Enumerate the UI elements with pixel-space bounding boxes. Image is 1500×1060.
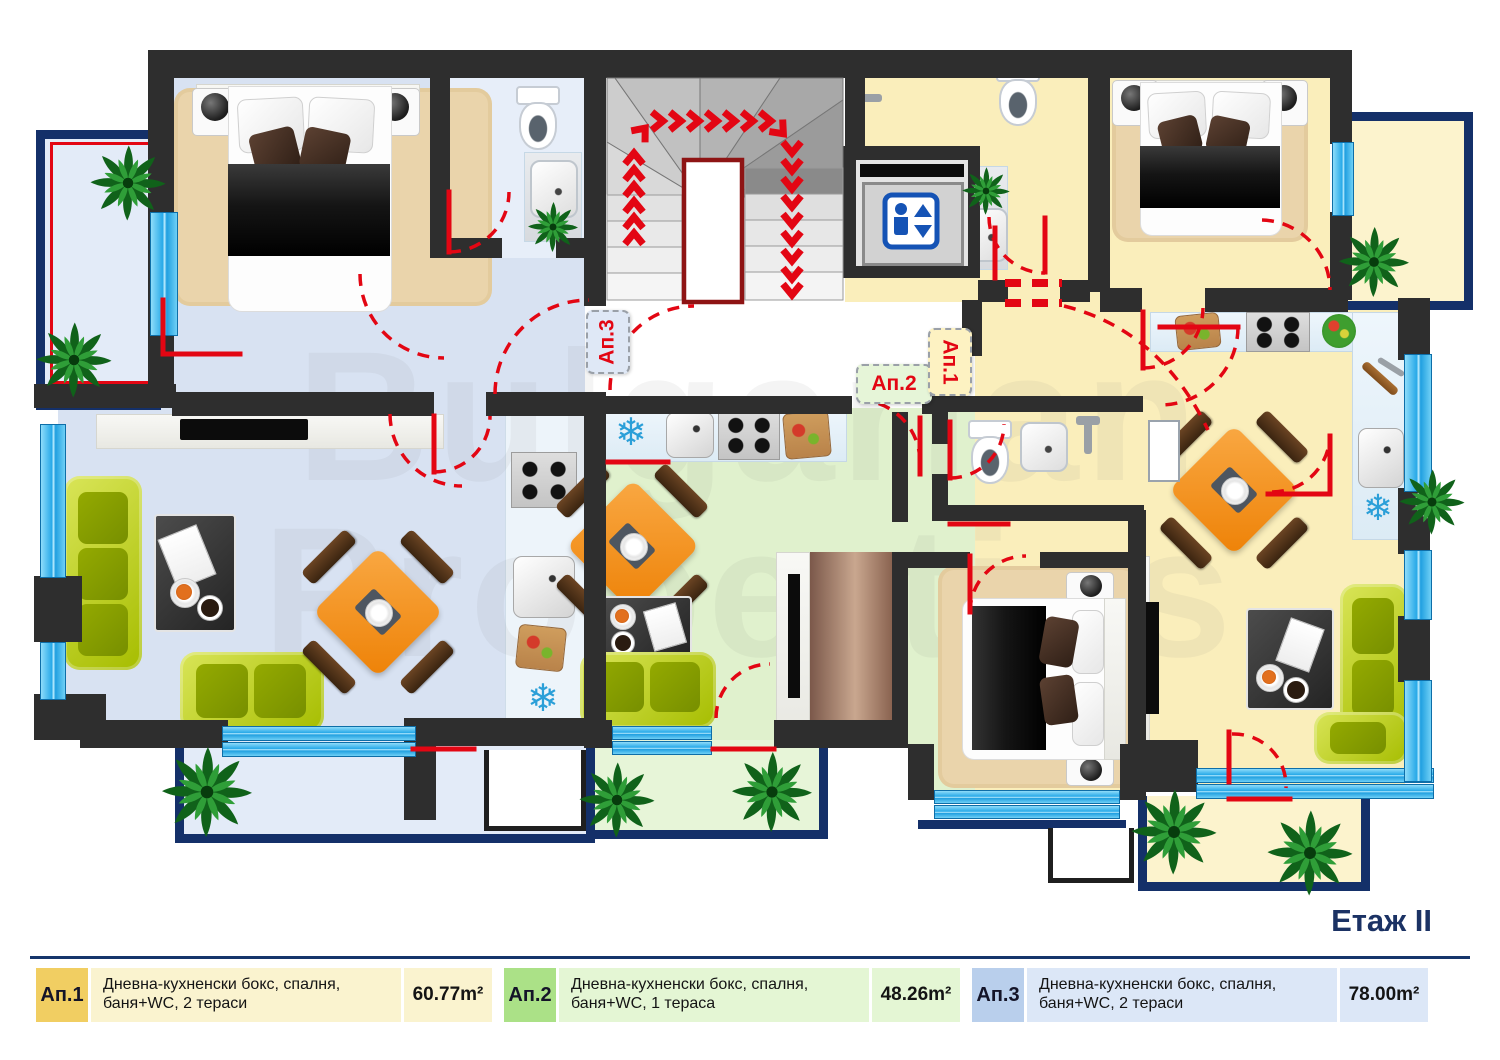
shower-head bbox=[1076, 416, 1100, 425]
wall bbox=[1120, 744, 1146, 800]
toilet bbox=[966, 420, 1010, 482]
floor-plan-page: Bulgarian Properties ❄ ❄ bbox=[0, 0, 1500, 1060]
bed-blanket bbox=[228, 164, 390, 256]
window bbox=[1332, 142, 1354, 216]
sofa-cushion bbox=[1352, 660, 1394, 716]
wall bbox=[430, 76, 450, 258]
sofa-cushion bbox=[1330, 722, 1386, 754]
lamp-icon bbox=[1080, 575, 1102, 597]
cutting-board bbox=[1174, 312, 1221, 351]
pillow bbox=[1072, 610, 1104, 674]
bathroom-sink bbox=[530, 160, 578, 218]
wall bbox=[1128, 510, 1146, 750]
plate bbox=[620, 533, 648, 561]
lamp-icon bbox=[1080, 759, 1102, 781]
legend-area-ap1: 60.77m² bbox=[404, 968, 492, 1022]
legend-label-ap1: Ап.1 bbox=[36, 968, 88, 1022]
window bbox=[1404, 680, 1432, 782]
wall bbox=[908, 744, 934, 800]
wall bbox=[584, 396, 606, 742]
window bbox=[222, 726, 416, 741]
sofa-cushion bbox=[254, 664, 306, 718]
light-well bbox=[1048, 828, 1134, 883]
cutting-board bbox=[782, 410, 832, 460]
wall bbox=[845, 76, 865, 152]
bed-blanket bbox=[972, 606, 1046, 750]
wall bbox=[148, 50, 1352, 78]
plan-tag-ap3-label: Ап.3 bbox=[596, 319, 620, 364]
wall bbox=[1205, 288, 1348, 312]
wall bbox=[605, 396, 852, 414]
window bbox=[40, 642, 66, 700]
window bbox=[40, 424, 66, 578]
tv bbox=[1146, 602, 1159, 714]
wall bbox=[80, 720, 228, 748]
legend-desc-ap1: Дневна-кухненски бокс, спалня, баня+WC, … bbox=[91, 968, 401, 1022]
toilet bbox=[514, 86, 558, 148]
sofa-cushion bbox=[78, 492, 128, 544]
wall bbox=[1398, 488, 1430, 554]
wardrobe bbox=[810, 552, 892, 738]
wall bbox=[1398, 298, 1430, 360]
legend-desc-ap3: Дневна-кухненски бокс, спалня, баня+WC, … bbox=[1027, 968, 1337, 1022]
wall bbox=[1060, 280, 1090, 302]
window bbox=[612, 741, 712, 755]
coffee-cup bbox=[1284, 678, 1308, 702]
fridge-snowflake-icon: ❄ bbox=[600, 410, 662, 454]
food bbox=[615, 609, 629, 623]
window bbox=[1404, 354, 1432, 492]
terrace-ap1-bottom bbox=[1138, 796, 1370, 891]
wall bbox=[584, 76, 606, 306]
legend: Ап.1 Дневна-кухненски бокс, спалня, баня… bbox=[36, 968, 1428, 1022]
wall bbox=[908, 552, 970, 568]
wall bbox=[172, 392, 434, 416]
plan-tag-ap1: Ап.1 bbox=[928, 328, 972, 396]
wall bbox=[978, 280, 1008, 302]
sofa-cushion bbox=[1352, 598, 1394, 654]
window bbox=[1196, 784, 1434, 799]
window bbox=[1196, 768, 1434, 783]
shower-fixture bbox=[1084, 420, 1092, 454]
wall bbox=[1330, 212, 1352, 300]
legend-desc-ap2: Дневна-кухненски бокс, спалня, баня+WC, … bbox=[559, 968, 869, 1022]
legend-area-ap3: 78.00m² bbox=[1340, 968, 1428, 1022]
coffee-cup bbox=[612, 632, 634, 654]
legend-label-ap3: Ап.3 bbox=[972, 968, 1024, 1022]
kitchen-sink bbox=[666, 412, 714, 458]
plan-tag-ap1-label: Ап.1 bbox=[938, 339, 962, 384]
wall bbox=[945, 396, 1143, 412]
wall bbox=[892, 552, 908, 744]
coffee-cup bbox=[198, 596, 222, 620]
legend-area-ap2: 48.26m² bbox=[872, 968, 960, 1022]
terrace-ap1-top-right bbox=[1348, 112, 1473, 310]
wall bbox=[430, 238, 502, 258]
legend-item-ap3: Ап.3 Дневна-кухненски бокс, спалня, баня… bbox=[972, 968, 1428, 1022]
accent-cushion bbox=[1039, 674, 1079, 726]
stairwell-floor bbox=[605, 76, 845, 306]
lamp-icon bbox=[201, 93, 229, 121]
plan-tag-ap3: Ап.3 bbox=[586, 310, 630, 374]
floor-title: Етаж II bbox=[1000, 903, 1432, 939]
divider-rule bbox=[30, 956, 1470, 959]
kitchen-sink bbox=[1358, 428, 1404, 488]
stove bbox=[718, 410, 780, 460]
elevator-door-band bbox=[860, 164, 964, 177]
legend-label-ap2: Ап.2 bbox=[504, 968, 556, 1022]
food bbox=[176, 584, 192, 600]
plan-tag-ap2-label: Ап.2 bbox=[871, 372, 916, 396]
wall bbox=[556, 238, 586, 258]
window bbox=[222, 742, 416, 757]
plan-tag-ap2: Ап.2 bbox=[856, 364, 932, 404]
tv bbox=[788, 574, 800, 698]
bed-blanket bbox=[1140, 146, 1280, 208]
headboard bbox=[1104, 598, 1126, 760]
sofa-cushion bbox=[650, 662, 700, 712]
window bbox=[150, 212, 178, 336]
wall bbox=[1100, 288, 1142, 312]
window bbox=[934, 790, 1120, 804]
wall bbox=[1088, 76, 1110, 292]
window bbox=[612, 726, 712, 740]
plate bbox=[1221, 477, 1249, 505]
sofa-cushion bbox=[78, 548, 128, 600]
wall-shelf bbox=[1148, 420, 1180, 482]
sofa-cushion bbox=[196, 664, 248, 718]
wall bbox=[774, 720, 908, 748]
wall bbox=[932, 505, 1144, 521]
terrace-ap3-left-red-line bbox=[50, 142, 153, 384]
stove bbox=[1246, 312, 1310, 352]
legend-item-ap2: Ап.2 Дневна-кухненски бокс, спалня, баня… bbox=[504, 968, 960, 1022]
wall bbox=[1146, 740, 1198, 792]
salad-bowl bbox=[1322, 314, 1356, 348]
window bbox=[1404, 550, 1432, 620]
bathroom-sink bbox=[1020, 422, 1068, 472]
food bbox=[1262, 670, 1276, 684]
wall bbox=[34, 384, 176, 408]
wall bbox=[932, 412, 948, 444]
faucet bbox=[862, 94, 882, 102]
wall bbox=[1330, 50, 1352, 144]
tv bbox=[180, 419, 308, 440]
fridge-snowflake-icon: ❄ bbox=[512, 676, 574, 720]
elevator-cab bbox=[862, 182, 964, 266]
legend-item-ap1: Ап.1 Дневна-кухненски бокс, спалня, баня… bbox=[36, 968, 492, 1022]
wall bbox=[584, 720, 612, 748]
wall bbox=[34, 576, 82, 642]
light-well bbox=[484, 750, 586, 831]
wall bbox=[1398, 616, 1430, 682]
fridge-snowflake-icon: ❄ bbox=[1352, 488, 1404, 529]
plate bbox=[365, 599, 393, 627]
window bbox=[934, 805, 1120, 819]
wall bbox=[892, 412, 908, 522]
sofa-cushion bbox=[78, 604, 128, 656]
cutting-board bbox=[515, 624, 567, 673]
